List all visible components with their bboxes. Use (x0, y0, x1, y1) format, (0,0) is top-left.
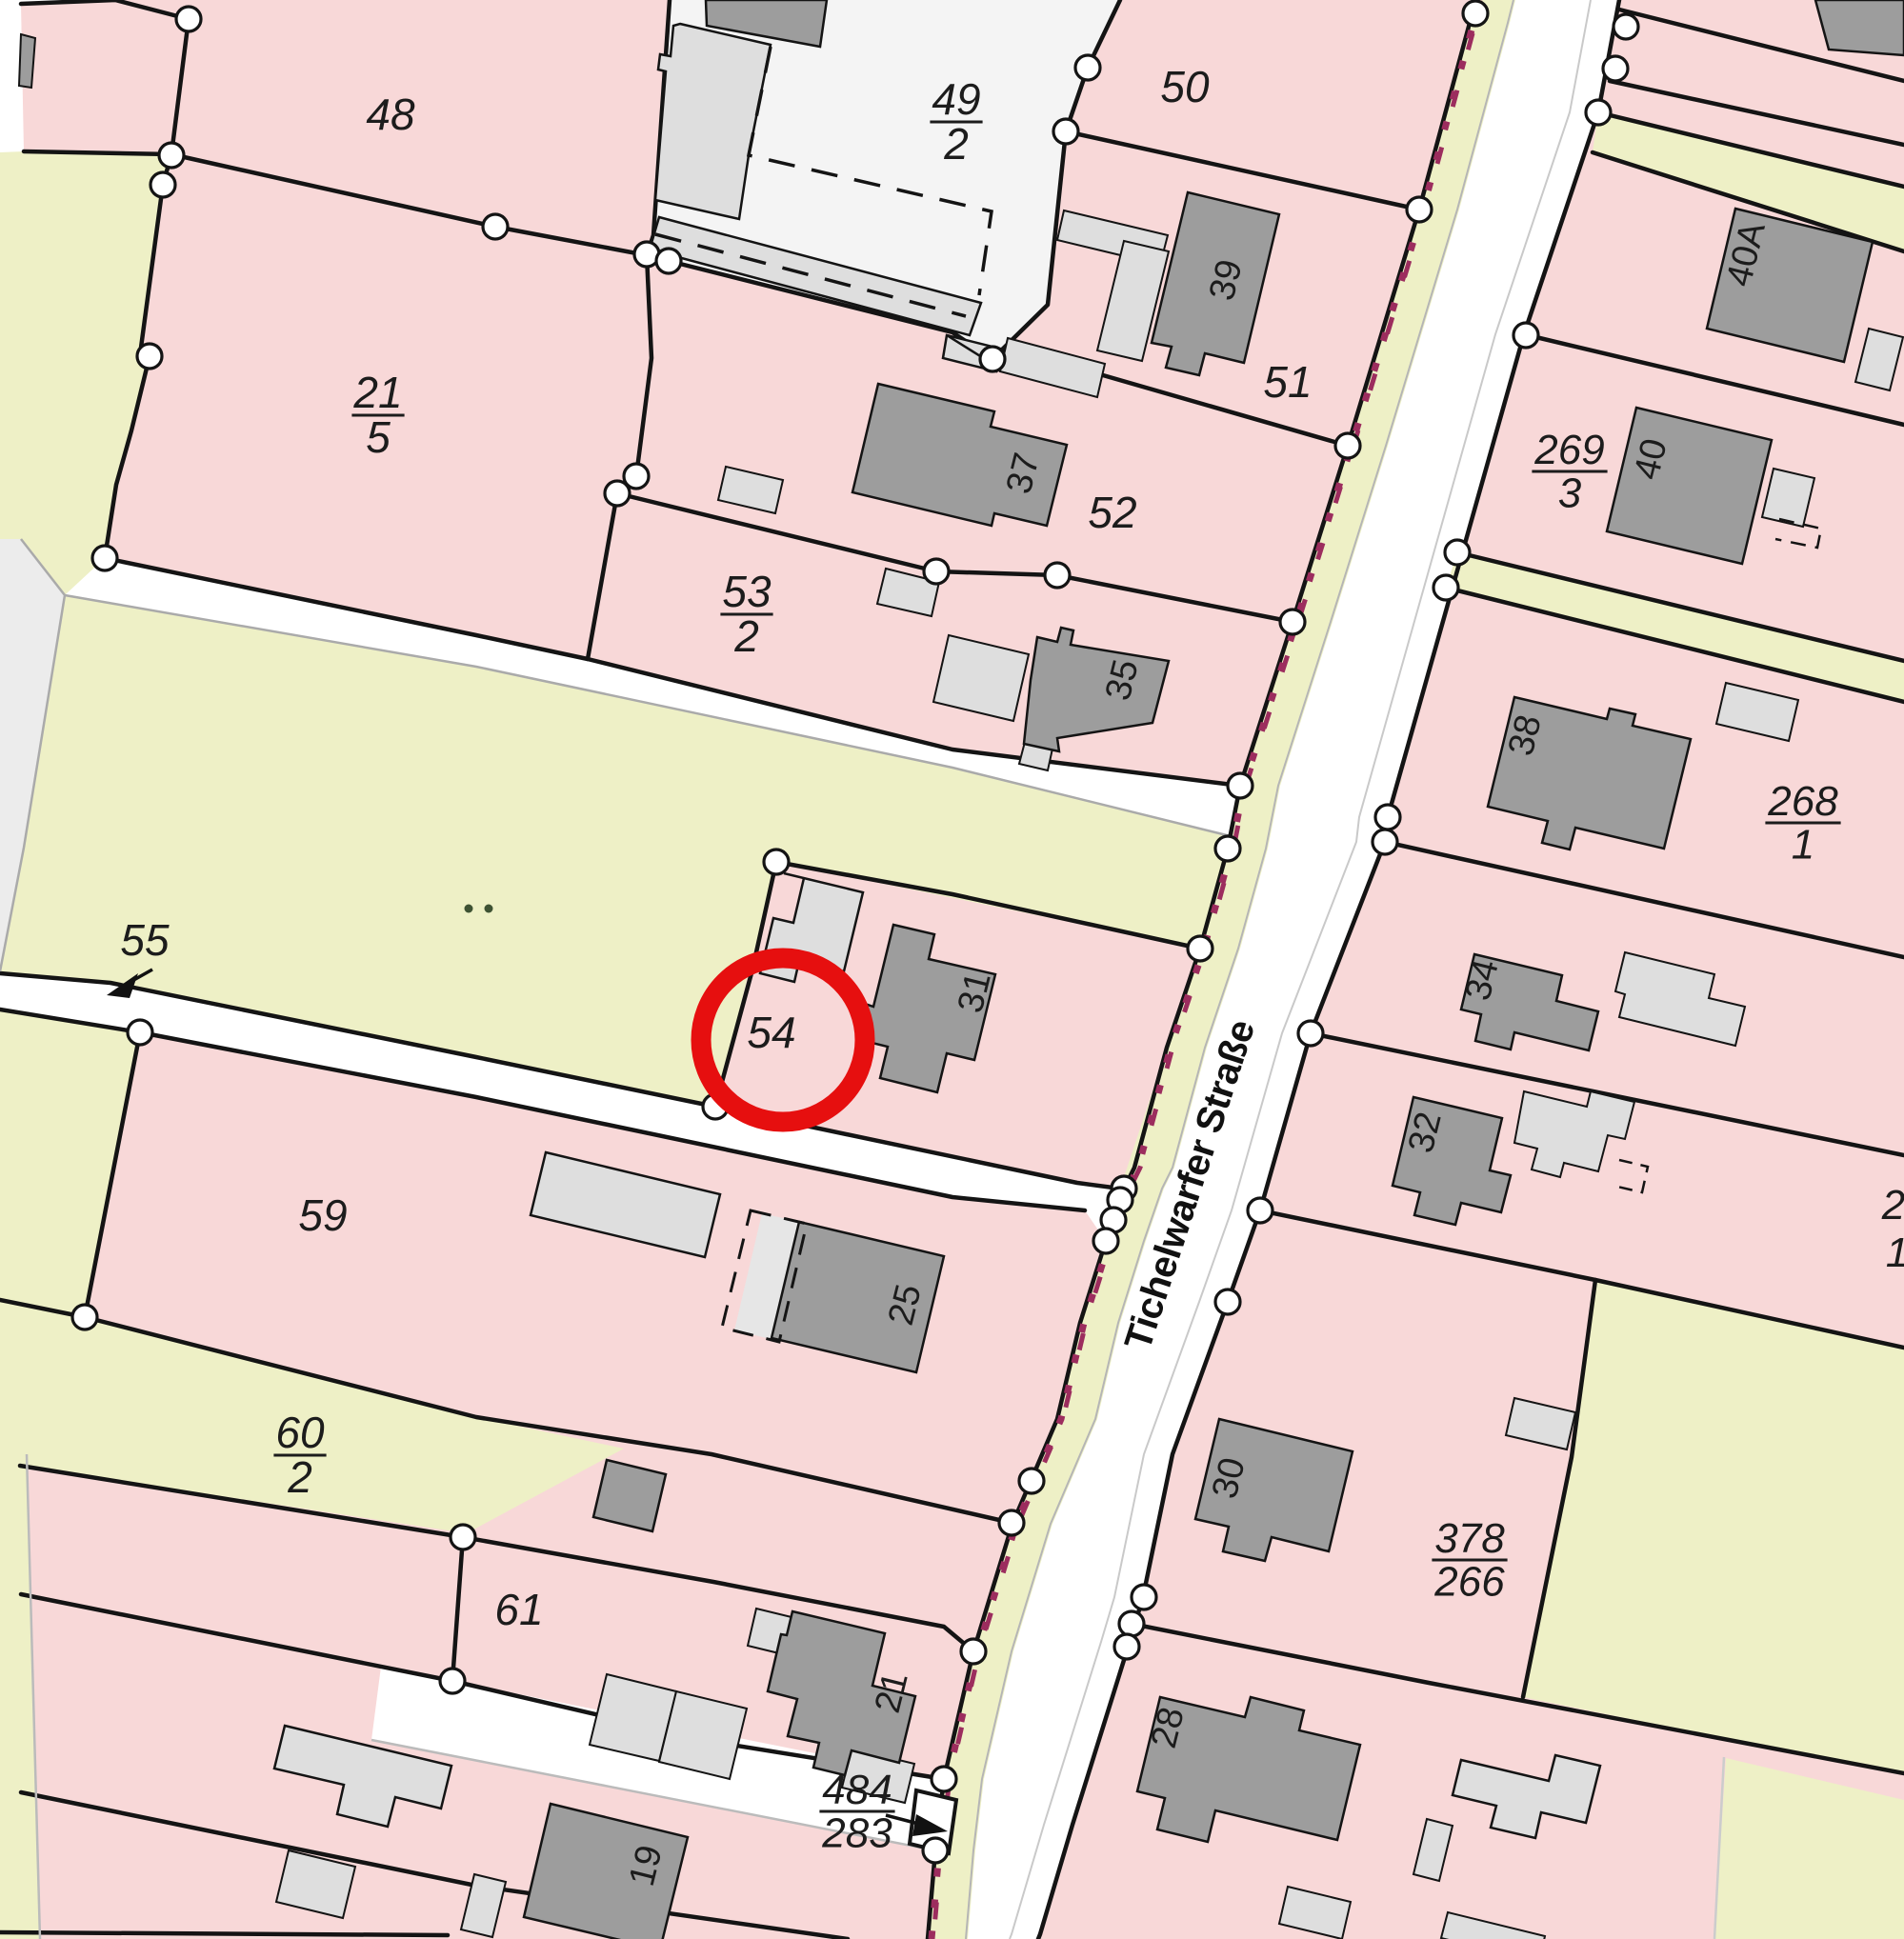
svg-text:61: 61 (494, 1585, 543, 1634)
svg-text:268: 268 (1767, 778, 1838, 825)
svg-text:21: 21 (352, 368, 402, 417)
svg-text:283: 283 (821, 1809, 892, 1856)
svg-text:2: 2 (287, 1452, 312, 1502)
svg-text:53: 53 (722, 567, 772, 616)
svg-text:55: 55 (120, 915, 170, 965)
svg-text:54: 54 (747, 1008, 795, 1057)
svg-text:48: 48 (366, 90, 415, 139)
svg-text:52: 52 (1088, 488, 1136, 537)
svg-text:266: 266 (1433, 1558, 1505, 1605)
svg-text:60: 60 (275, 1408, 325, 1457)
svg-text:1: 1 (1792, 821, 1814, 868)
svg-text:2: 2 (733, 611, 759, 661)
svg-text:484: 484 (822, 1767, 892, 1813)
svg-text:49: 49 (932, 74, 980, 124)
svg-text:2: 2 (943, 119, 969, 169)
svg-text:59: 59 (298, 1190, 347, 1240)
svg-text:50: 50 (1160, 62, 1210, 111)
svg-text:378: 378 (1434, 1515, 1505, 1562)
svg-text:269: 269 (1533, 427, 1604, 473)
svg-text:3: 3 (1558, 470, 1582, 516)
svg-text:2: 2 (1881, 1182, 1904, 1229)
svg-text:5: 5 (366, 412, 391, 462)
svg-text:51: 51 (1263, 357, 1312, 407)
svg-text:1: 1 (1886, 1229, 1904, 1276)
